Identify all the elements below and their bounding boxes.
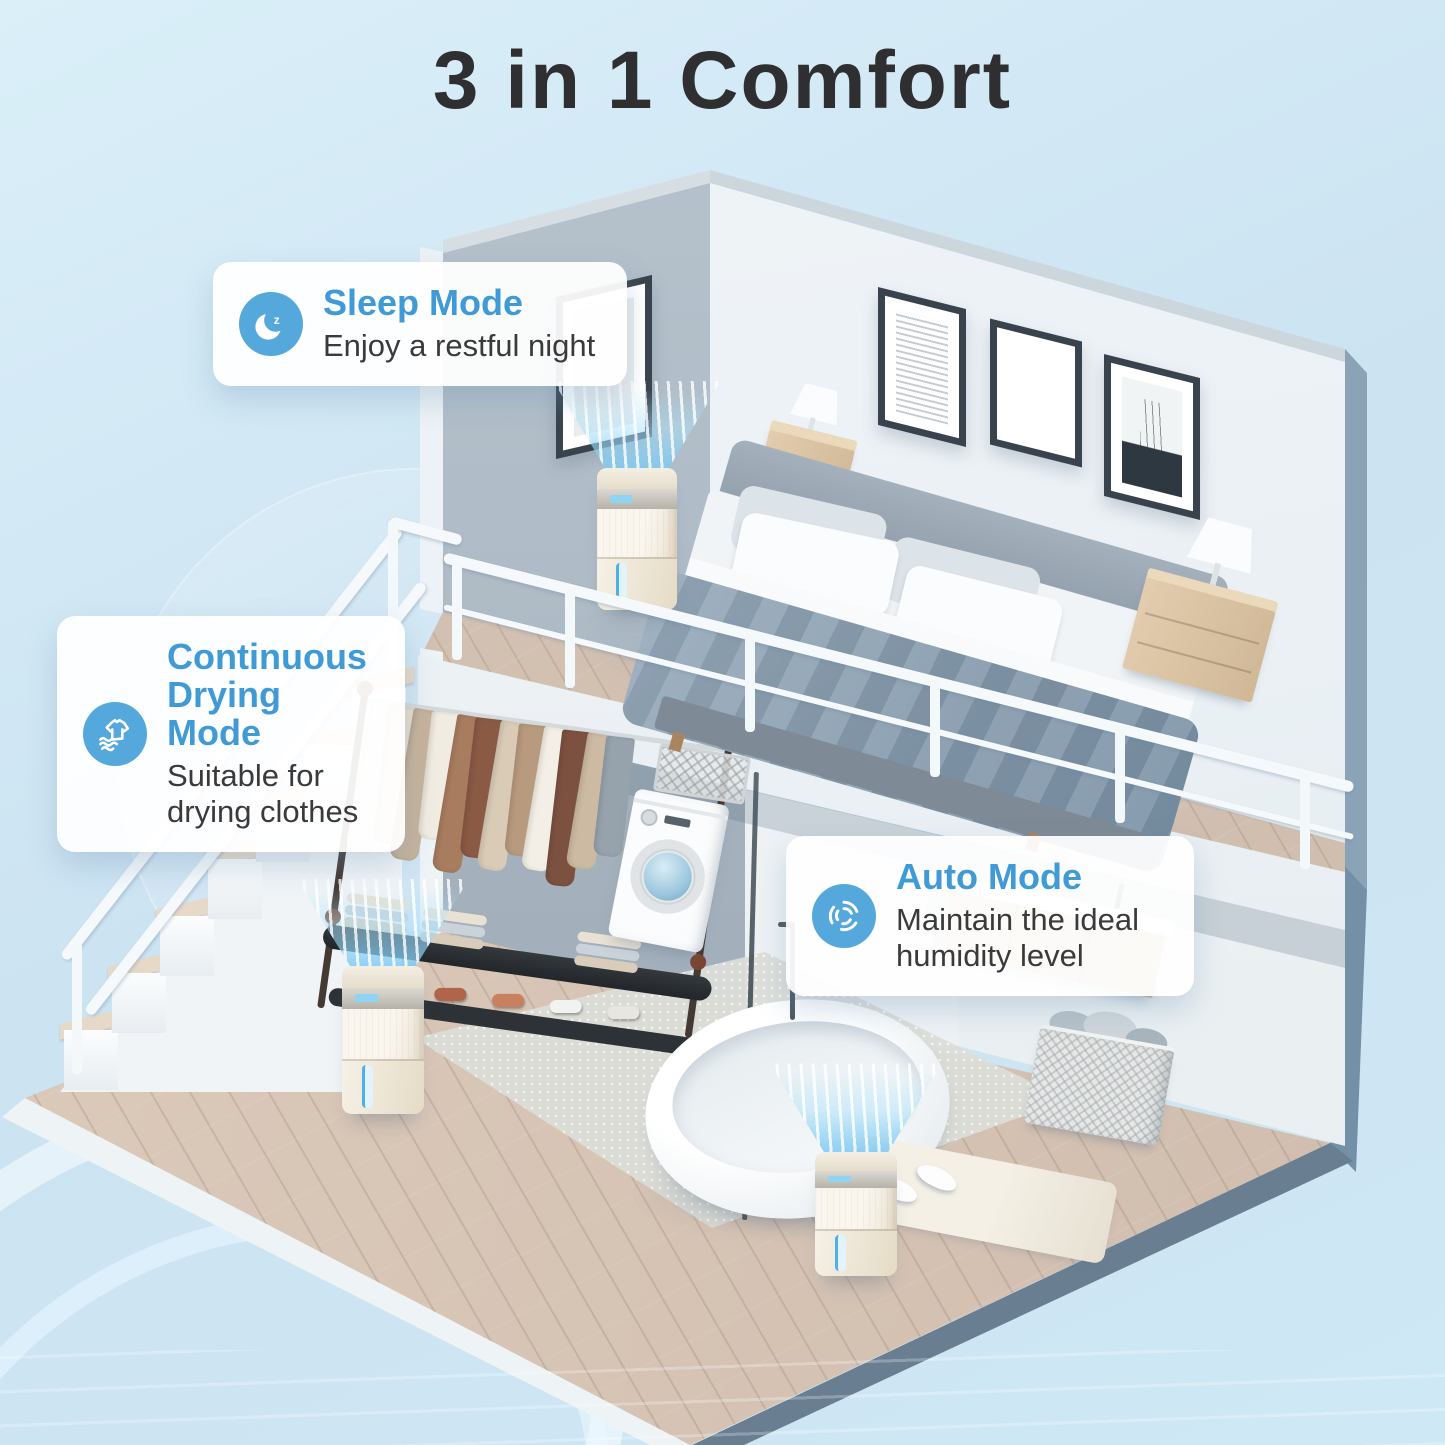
shoes: [492, 994, 524, 1007]
shoes: [607, 1006, 639, 1019]
shoes: [434, 988, 466, 1001]
product-infographic: z Sleep Mode Enjoy a restful night Conti…: [0, 0, 1445, 1445]
callout-title: Auto Mode: [896, 858, 1168, 896]
callout-sleep-mode: z Sleep Mode Enjoy a restful night: [213, 262, 627, 386]
dehumidifier-closet: [342, 966, 424, 1114]
shirt-breeze-icon: [83, 702, 147, 766]
svg-text:z: z: [274, 313, 280, 327]
callout-description: Enjoy a restful night: [323, 328, 595, 364]
callout-description: Suitable for drying clothes: [167, 758, 379, 830]
dehumidifier-bedroom: [597, 468, 677, 610]
callout-description: Maintain the ideal humidity level: [896, 902, 1168, 974]
auto-swirl-icon: [812, 884, 876, 948]
moon-z-icon: z: [239, 292, 303, 356]
water-ripples: [0, 1350, 1445, 1445]
picture-frame: [990, 319, 1082, 468]
callout-title: Sleep Mode: [323, 284, 595, 322]
picture-frame: [1104, 354, 1200, 520]
callout-continuous-drying-mode: Continuous Drying Mode Suitable for dryi…: [57, 616, 405, 852]
page-title: 3 in 1 Comfort: [0, 34, 1445, 128]
picture-frame: [878, 287, 966, 447]
callout-title: Continuous Drying Mode: [167, 638, 379, 752]
callout-auto-mode: Auto Mode Maintain the ideal humidity le…: [786, 836, 1194, 996]
shoes: [550, 1000, 582, 1013]
dehumidifier-bathroom: [815, 1152, 897, 1276]
washer-dial: [639, 808, 659, 828]
laundry-basket: [1022, 1018, 1180, 1159]
